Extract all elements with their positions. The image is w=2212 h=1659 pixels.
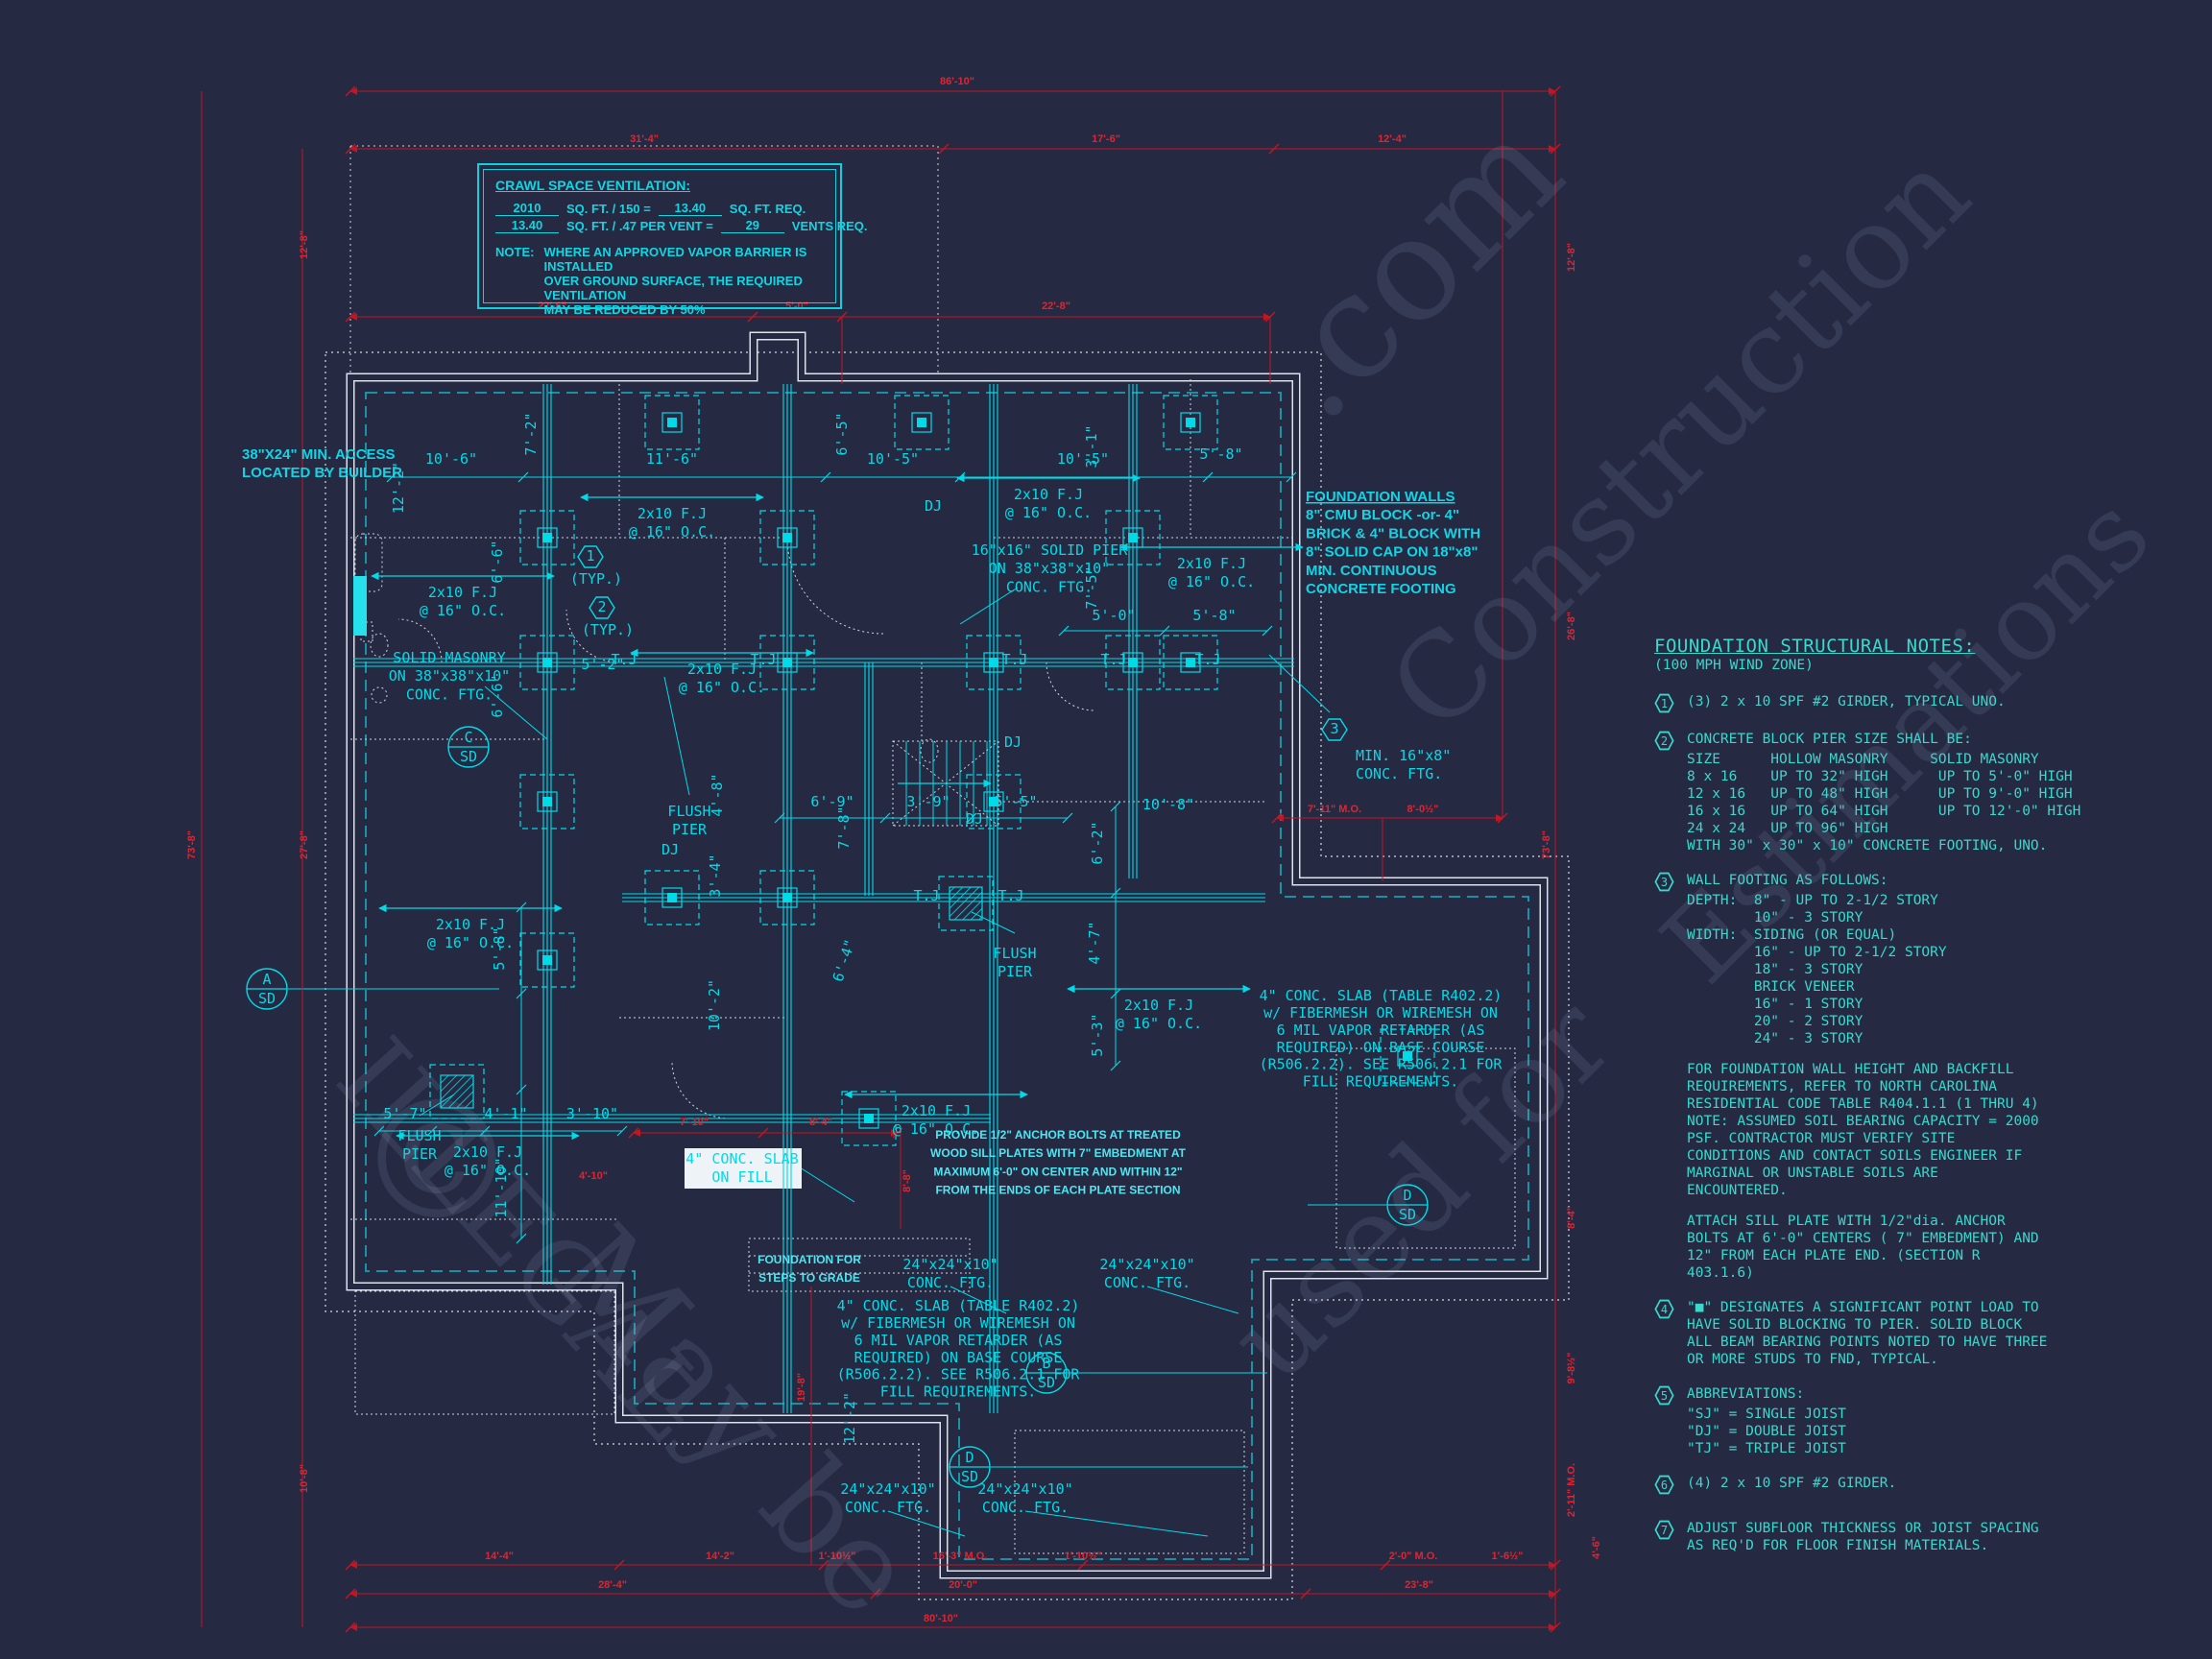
crawl-box-inner: CRAWL SPACE VENTILATION: 2010 SQ. FT. / … [483, 169, 836, 303]
foundation-plan-sheet: 10'-6"11'-6"10'-5"10'-5"5'-8"7'-2"12'-2"… [0, 0, 2212, 1659]
section-callout-id: D [965, 1449, 974, 1466]
pier-core [1128, 658, 1138, 667]
plan-label: 4'-8" [709, 773, 726, 816]
red-dim-label: 14'-4" [485, 1551, 514, 1562]
note-number-hexagon: 6 [1654, 1475, 1674, 1495]
plan-label: T.J [998, 887, 1023, 904]
note-line: FOR FOUNDATION WALL HEIGHT AND BACKFILL … [1654, 1061, 2050, 1199]
plan-label: DJ [966, 810, 983, 828]
section-callout-id: A [262, 971, 271, 988]
pier-core [782, 893, 792, 902]
plan-label: 24"x24"x10"CONC. FTG. [977, 1480, 1072, 1516]
pier-core [542, 533, 552, 542]
red-dim-label: 19'-8" [796, 1373, 807, 1402]
plan-label: 2x10 F.J@ 16" O.C. [1116, 997, 1202, 1032]
plan-label: T.J [611, 651, 637, 668]
note-text: ATTACH SILL PLATE WITH 1/2"dia. ANCHOR B… [1687, 1214, 2039, 1281]
pier-core [667, 418, 677, 427]
crawl-f2-unit: VENTS REQ. [792, 219, 868, 233]
pier-core [542, 658, 552, 667]
red-dim-label: 20'-0" [949, 1579, 977, 1591]
crawl-f2-value1: 13.40 [495, 218, 559, 233]
pier-core [917, 418, 926, 427]
red-dim-label: 28'-4" [598, 1579, 627, 1591]
red-dim-label: 9'-8½" [1566, 1353, 1577, 1384]
note-item: 4"■" DESIGNATES A SIGNIFICANT POINT LOAD… [1654, 1299, 2050, 1368]
plan-label: 5'-3" [1089, 1013, 1106, 1056]
hex-note-number: 2 [597, 598, 606, 615]
plan-label: 7'-5" [1083, 565, 1100, 609]
red-dim-label: 2'-0" M.O. [1389, 1551, 1438, 1562]
plan-label: T.J [750, 651, 776, 668]
plan-label: 6'-4" [829, 937, 859, 984]
plan-label: 2x10 F.J@ 16" O.C. [1168, 555, 1255, 590]
note-number-hexagon: 1 [1654, 693, 1674, 713]
plan-label: 3'-10" [566, 1105, 618, 1122]
crawl-note-label: NOTE: [495, 245, 534, 317]
plan-label: 2x10 F.J@ 16" O.C. [420, 584, 506, 619]
hex-note-typ-label: (TYP.) [582, 621, 634, 638]
plan-label: 3'-1" [1083, 424, 1100, 468]
red-dim-label: 12'-4" [1378, 133, 1407, 145]
plan-label: 12'-2" [841, 1392, 858, 1444]
pier-core [542, 955, 552, 965]
plan-label: 5'-8" [1192, 607, 1236, 624]
note-text: (4) 2 x 10 SPF #2 GIRDER. [1687, 1475, 2050, 1492]
foundation-structural-notes: FOUNDATION STRUCTURAL NOTES: (100 MPH WI… [1654, 637, 2050, 1554]
crawl-formula-row-1: 2010 SQ. FT. / 150 = 13.40 SQ. FT. REQ. [495, 201, 824, 216]
plan-text-labels: 10'-6"11'-6"10'-5"10'-5"5'-8"7'-2"12'-2"… [186, 76, 1602, 1624]
access-hatch-marker [353, 576, 367, 636]
note-text: DEPTH: 8" - UP TO 2-1/2 STORY [1687, 893, 1938, 908]
hatched-pier [950, 887, 982, 920]
plan-label: 4" CONC. SLAB (TABLE R402.2)w/ FIBERMESH… [1260, 987, 1503, 1091]
plan-label: FOUNDATION FORSTEPS TO GRADE [757, 1253, 861, 1285]
crawl-f1-unit: SQ. FT. REQ. [730, 202, 805, 216]
plan-label: 4'-7" [1086, 921, 1103, 964]
red-dim-label: 4'-10" [579, 1170, 608, 1182]
note-line: "DJ" = DOUBLE JOIST [1654, 1423, 2050, 1440]
red-dim-label: 8'-4" [809, 1117, 832, 1128]
crawl-f2-value2: 29 [721, 218, 784, 233]
plan-label: 10'-8" [1142, 796, 1194, 813]
pier-core [542, 797, 552, 806]
section-callout-sheet: SD [1399, 1206, 1416, 1223]
section-callout-sheet: SD [460, 748, 477, 765]
note-item: 6(4) 2 x 10 SPF #2 GIRDER. [1654, 1475, 2050, 1495]
plan-label: 10'-5" [867, 450, 919, 468]
plan-label: DJ [661, 841, 679, 858]
plan-label: FLUSHPIER [993, 945, 1036, 980]
notes-subtitle: (100 MPH WIND ZONE) [1654, 657, 2050, 674]
note-line: BRICK VENEER [1654, 978, 2050, 996]
plan-label: 3'-4" [707, 854, 724, 897]
plan-label: 5'-5" [994, 793, 1037, 810]
plan-label: 24"x24"x10"CONC. FTG. [1099, 1256, 1194, 1291]
plan-label: T.J [1194, 651, 1220, 668]
note-text: 20" - 2 STORY [1687, 1014, 1863, 1029]
note-line: DEPTH: 8" - UP TO 2-1/2 STORY [1654, 892, 2050, 909]
note-number-hexagon: 4 [1654, 1299, 1674, 1319]
section-callout-id: B [1042, 1355, 1050, 1372]
notes-title: FOUNDATION STRUCTURAL NOTES: [1654, 637, 2050, 655]
plan-label: 16"x16" SOLID PIERON 38"x38"x10"CONC. FT… [972, 541, 1129, 595]
note-number-hexagon: 5 [1654, 1385, 1674, 1406]
plan-label: FOUNDATION WALLS8" CMU BLOCK -or- 4"BRIC… [1306, 489, 1480, 597]
note-text: ADJUST SUBFLOOR THICKNESS OR JOIST SPACI… [1687, 1520, 2050, 1554]
plan-label: 4'-1" [484, 1105, 527, 1122]
red-dim-label: 2'-11" M.O. [1566, 1463, 1577, 1517]
red-dim-label: 22'-8" [1042, 301, 1070, 312]
note-text: WIDTH: SIDING (OR EQUAL) [1687, 927, 1896, 943]
note-text: "TJ" = TRIPLE JOIST [1687, 1441, 1846, 1456]
red-dim-label: 1'-10½" [818, 1551, 855, 1562]
red-dim-label: 10'-8" [299, 1464, 310, 1493]
note-number-hexagon: 2 [1654, 731, 1674, 751]
plan-label: 11'-6" [646, 450, 698, 468]
red-dim-label: 8'-8" [902, 1169, 913, 1192]
red-dim-label: 31'-4" [630, 133, 659, 145]
section-callout-id: C [464, 729, 472, 746]
section-callout-sheet: SD [258, 990, 276, 1007]
note-text: 18" - 3 STORY [1687, 962, 1863, 977]
pier-core [1186, 418, 1195, 427]
plan-label: 38"X24" MIN. ACCESSLOCATED BY BUILDER [242, 446, 402, 481]
note-line: 16" - UP TO 2-1/2 STORY [1654, 944, 2050, 961]
pier-core [667, 893, 677, 902]
red-dim-label: 73'-8" [1541, 830, 1552, 859]
crawl-f1-op: SQ. FT. / 150 = [566, 202, 651, 216]
pier-core [782, 533, 792, 542]
hex-note-number: 1 [586, 547, 594, 565]
plan-label: 7'-2" [522, 412, 540, 455]
note-text: BRICK VENEER [1687, 979, 1855, 995]
plan-label: 7'-8" [835, 805, 853, 849]
note-text: 16 x 16 UP TO 64" HIGH UP TO 12'-0" HIGH [1687, 804, 2080, 819]
note-number-hexagon: 3 [1654, 872, 1674, 892]
red-dim-label: 12'-8" [1566, 243, 1577, 272]
red-dim-label: 1'-6½" [1492, 1551, 1524, 1562]
hex-note-typ-label: (TYP.) [570, 570, 622, 588]
plan-label: 5'-8" [491, 926, 508, 970]
crawl-formula-row-2: 13.40 SQ. FT. / .47 PER VENT = 29 VENTS … [495, 218, 824, 233]
crawl-f2-op: SQ. FT. / .47 PER VENT = [566, 219, 713, 233]
pier-core [782, 658, 792, 667]
red-dim-label: 4'-6" [1591, 1536, 1602, 1559]
note-line: 20" - 2 STORY [1654, 1013, 2050, 1030]
note-line: 8 x 16 UP TO 32" HIGH UP TO 5'-0" HIGH [1654, 768, 2050, 785]
plan-label: DJ [925, 497, 942, 515]
red-dim-label: 12'-8" [299, 230, 310, 259]
red-dim-label: 8'-4" [1566, 1206, 1577, 1229]
note-item: 7ADJUST SUBFLOOR THICKNESS OR JOIST SPAC… [1654, 1520, 2050, 1554]
note-line: 16" - 1 STORY [1654, 996, 2050, 1013]
note-text: 10" - 3 STORY [1687, 910, 1863, 926]
pier-core [1128, 533, 1138, 542]
red-dim-label: 86'-10" [940, 76, 974, 87]
note-item: 3WALL FOOTING AS FOLLOWS: [1654, 872, 2050, 892]
door-swings-and-fixtures [355, 534, 1094, 1118]
note-item: 1(3) 2 x 10 SPF #2 GIRDER, TYPICAL UNO. [1654, 693, 2050, 713]
plan-label: 11'-10" [493, 1157, 510, 1217]
plan-label: 10'-2" [706, 979, 723, 1031]
note-line: 16 x 16 UP TO 64" HIGH UP TO 12'-0" HIGH [1654, 803, 2050, 820]
note-text: FOR FOUNDATION WALL HEIGHT AND BACKFILL … [1687, 1062, 2039, 1198]
note-text: (3) 2 x 10 SPF #2 GIRDER, TYPICAL UNO. [1687, 693, 2050, 710]
red-dim-label: 23'-8" [1405, 1579, 1433, 1591]
red-dim-label: 8'-0½" [1407, 804, 1439, 815]
plan-label: 6'-2" [1089, 821, 1106, 864]
note-number-hexagon: 7 [1654, 1520, 1674, 1540]
note-text: SIZE HOLLOW MASONRY SOLID MASONRY [1687, 752, 2039, 767]
note-line: 24" - 3 STORY [1654, 1030, 2050, 1047]
crawl-space-ventilation-box: CRAWL SPACE VENTILATION: 2010 SQ. FT. / … [477, 163, 842, 309]
note-text: "DJ" = DOUBLE JOIST [1687, 1424, 1846, 1439]
section-callout-sheet: SD [1038, 1374, 1055, 1391]
plan-label: 10'-6" [425, 450, 477, 468]
note-line: "TJ" = TRIPLE JOIST [1654, 1440, 2050, 1457]
note-text: WALL FOOTING AS FOLLOWS: [1687, 872, 2050, 889]
red-dim-label: 14'-2" [706, 1551, 734, 1562]
plan-label: 6'-5" [833, 412, 851, 455]
note-text: ABBREVIATIONS: [1687, 1385, 2050, 1403]
note-text: 16" - UP TO 2-1/2 STORY [1687, 945, 1947, 960]
hex-note-number: 3 [1330, 720, 1338, 737]
section-callout-id: D [1403, 1187, 1411, 1204]
red-dim-label: 26'-8" [1566, 612, 1577, 640]
note-text: WITH 30" x 30" x 10" CONCRETE FOOTING, U… [1687, 838, 2047, 854]
plan-label: 2x10 F.J@ 16" O.C. [629, 505, 715, 541]
note-text: "SJ" = SINGLE JOIST [1687, 1407, 1846, 1422]
note-line: WITH 30" x 30" x 10" CONCRETE FOOTING, U… [1654, 837, 2050, 854]
note-line: SIZE HOLLOW MASONRY SOLID MASONRY [1654, 751, 2050, 768]
plan-label: T.J [913, 887, 939, 904]
note-line: "SJ" = SINGLE JOIST [1654, 1406, 2050, 1423]
note-text: 24 x 24 UP TO 96" HIGH [1687, 821, 1888, 836]
leader-lines [288, 588, 1386, 1536]
note-line: 18" - 3 STORY [1654, 961, 2050, 978]
note-line: 12 x 16 UP TO 48" HIGH UP TO 9'-0" HIGH [1654, 785, 2050, 803]
pier-core [864, 1114, 874, 1123]
pier-core [989, 658, 998, 667]
crawl-box-note: NOTE: WHERE AN APPROVED VAPOR BARRIER IS… [495, 245, 824, 317]
note-text: 16" - 1 STORY [1687, 997, 1863, 1012]
section-callout-sheet: SD [961, 1468, 978, 1485]
plan-label: PROVIDE 1/2" ANCHOR BOLTS AT TREATEDWOOD… [930, 1128, 1187, 1197]
note-text: "■" DESIGNATES A SIGNIFICANT POINT LOAD … [1687, 1299, 2050, 1368]
crawl-note-text: WHERE AN APPROVED VAPOR BARRIER IS INSTA… [543, 245, 824, 317]
red-dim-label: 27'-8" [299, 830, 310, 859]
red-dim-label: 16'-3" M.O. [933, 1551, 988, 1562]
red-dim-label: 80'-10" [924, 1613, 958, 1624]
note-item: 2CONCRETE BLOCK PIER SIZE SHALL BE: [1654, 731, 2050, 751]
crawl-box-title: CRAWL SPACE VENTILATION: [495, 178, 824, 193]
note-line: 10" - 3 STORY [1654, 909, 2050, 926]
hatched-pier [441, 1075, 473, 1108]
plan-label: 24"x24"x10"CONC. FTG. [902, 1256, 998, 1291]
plan-label: 6'-6" [489, 540, 506, 583]
red-dim-label: 17'-6" [1092, 133, 1120, 145]
plan-label: 6'-6" [489, 674, 506, 717]
note-text: CONCRETE BLOCK PIER SIZE SHALL BE: [1687, 731, 2050, 748]
crawl-f1-value2: 13.40 [659, 201, 722, 216]
crawl-f1-value1: 2010 [495, 201, 559, 216]
plan-label: MIN. 16"x8"CONC. FTG. [1356, 747, 1451, 782]
note-line: 24 x 24 UP TO 96" HIGH [1654, 820, 2050, 837]
red-dim-label: 1'-10½" [1064, 1551, 1101, 1562]
plan-label: 2x10 F.J@ 16" O.C. [445, 1143, 531, 1179]
plan-label: FLUSHPIER [667, 803, 710, 838]
note-line: WIDTH: SIDING (OR EQUAL) [1654, 926, 2050, 944]
red-dim-label: 7'-11" M.O. [1308, 804, 1361, 815]
notes-rows: 1(3) 2 x 10 SPF #2 GIRDER, TYPICAL UNO.2… [1654, 693, 2050, 1554]
plan-label: DJ [1004, 733, 1022, 751]
red-dim-label: 7'-10" [680, 1117, 709, 1128]
note-line: ATTACH SILL PLATE WITH 1/2"dia. ANCHOR B… [1654, 1213, 2050, 1282]
plan-label: 5'-8" [1199, 445, 1242, 463]
note-text: 24" - 3 STORY [1687, 1031, 1863, 1046]
note-text: 12 x 16 UP TO 48" HIGH UP TO 9'-0" HIGH [1687, 786, 2073, 802]
plan-label: 2x10 F.J@ 16" O.C. [1005, 486, 1092, 521]
plan-label: 24"x24"x10"CONC. FTG. [840, 1480, 935, 1516]
red-dim-label: 73'-8" [186, 830, 198, 859]
plan-label: T.J [1100, 651, 1126, 668]
note-text: 8 x 16 UP TO 32" HIGH UP TO 5'-0" HIGH [1687, 769, 2073, 784]
plan-label: T.J [1001, 651, 1027, 668]
plan-label: FLUSHPIER [397, 1127, 441, 1163]
plan-label: 3'-9" [906, 793, 950, 810]
note-item: 5ABBREVIATIONS: [1654, 1385, 2050, 1406]
plan-label: 5'-7" [383, 1105, 426, 1122]
